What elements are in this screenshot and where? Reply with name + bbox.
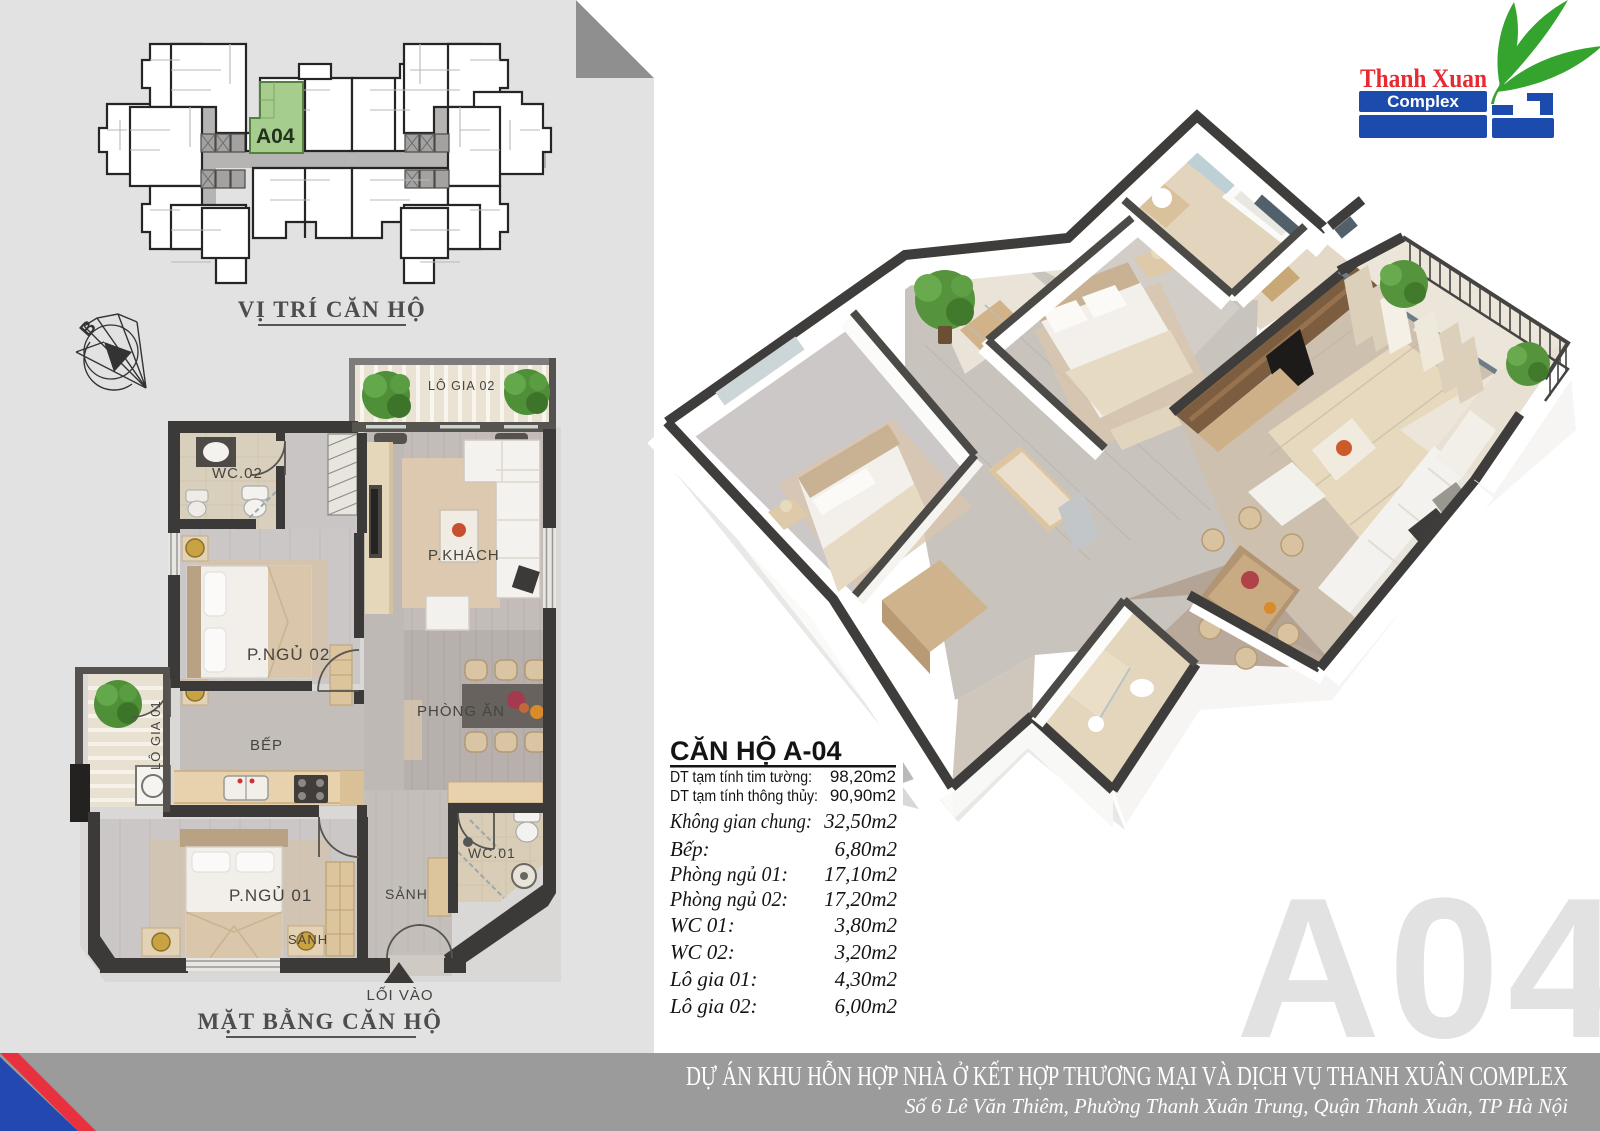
svg-text:Bếp:: Bếp: <box>670 837 710 861</box>
svg-text:A04: A04 <box>256 125 295 148</box>
svg-text:4,30m2: 4,30m2 <box>835 967 898 991</box>
svg-text:LÔ GIA 01: LÔ GIA 01 <box>148 700 163 770</box>
svg-text:DT tạm tính tim tường:: DT tạm tính tim tường: <box>670 769 812 786</box>
svg-text:32,50m2: 32,50m2 <box>823 809 897 833</box>
svg-text:WC 02:: WC 02: <box>670 940 735 964</box>
svg-text:SẢNH: SẢNH <box>288 932 328 947</box>
svg-text:P.NGỦ 01: P.NGỦ 01 <box>229 886 312 905</box>
svg-text:MẶT BẰNG CĂN HỘ: MẶT BẰNG CĂN HỘ <box>197 1008 442 1034</box>
svg-text:BẾP: BẾP <box>250 737 283 754</box>
svg-text:P.KHÁCH: P.KHÁCH <box>428 547 500 564</box>
svg-text:Lô gia 01:: Lô gia 01: <box>669 967 758 991</box>
svg-text:Complex: Complex <box>1387 92 1459 111</box>
svg-text:CĂN HỘ A-04: CĂN HỘ A-04 <box>670 735 842 766</box>
svg-text:SẢNH: SẢNH <box>385 886 428 902</box>
svg-text:6,80m2: 6,80m2 <box>835 837 898 861</box>
svg-text:LỐI VÀO: LỐI VÀO <box>366 986 433 1004</box>
svg-text:Số 6 Lê Văn Thiêm, Phường Than: Số 6 Lê Văn Thiêm, Phường Thanh Xuân Tru… <box>905 1094 1568 1118</box>
svg-text:Phòng ngủ 01:: Phòng ngủ 01: <box>669 862 788 886</box>
svg-text:6,00m2: 6,00m2 <box>835 994 898 1018</box>
svg-text:17,10m2: 17,10m2 <box>824 862 897 886</box>
svg-text:WC.02: WC.02 <box>212 465 263 482</box>
svg-text:VỊ TRÍ CĂN HỘ: VỊ TRÍ CĂN HỘ <box>238 296 426 322</box>
svg-text:17,20m2: 17,20m2 <box>824 887 897 911</box>
svg-text:PHÒNG ĂN: PHÒNG ĂN <box>417 703 505 720</box>
svg-text:90,90m2: 90,90m2 <box>830 786 896 805</box>
svg-text:WC.01: WC.01 <box>468 845 516 861</box>
svg-text:98,20m2: 98,20m2 <box>830 767 896 786</box>
svg-text:WC 01:: WC 01: <box>670 913 735 937</box>
svg-text:P.NGỦ 02: P.NGỦ 02 <box>247 645 330 664</box>
svg-text:3,80m2: 3,80m2 <box>834 913 898 937</box>
svg-text:Lô gia 02:: Lô gia 02: <box>669 994 758 1018</box>
svg-text:LÔ GIA 02: LÔ GIA 02 <box>428 378 495 393</box>
svg-text:A04: A04 <box>1236 857 1600 1080</box>
svg-text:Phòng ngủ 02:: Phòng ngủ 02: <box>669 887 788 911</box>
svg-text:Thanh Xuan: Thanh Xuan <box>1360 64 1487 93</box>
svg-text:DT tạm tính thông thủy:: DT tạm tính thông thủy: <box>670 788 818 805</box>
svg-text:3,20m2: 3,20m2 <box>834 940 898 964</box>
svg-text:Không gian chung:: Không gian chung: <box>669 809 812 833</box>
